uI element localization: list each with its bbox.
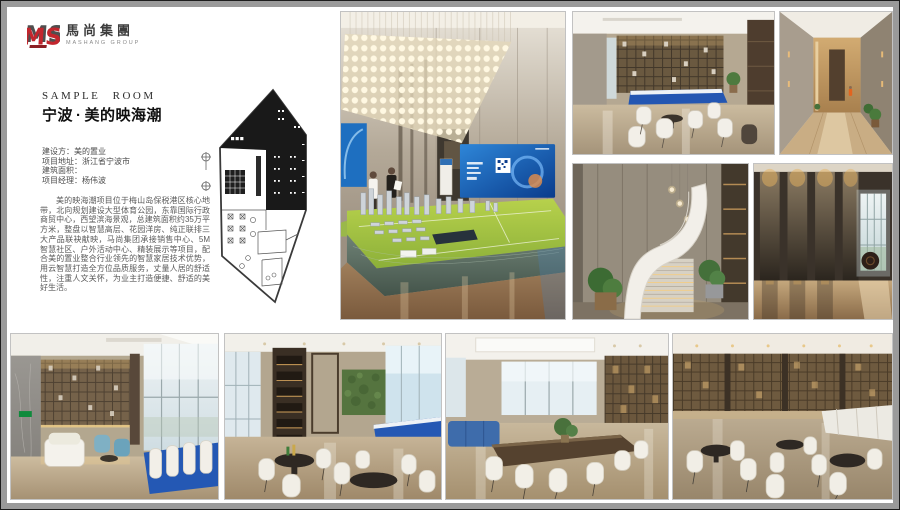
dining-illustration bbox=[673, 334, 892, 499]
section-eyebrow: SAMPLE ROOM bbox=[42, 90, 156, 102]
brand-name-en: MASHANG GROUP bbox=[66, 40, 140, 46]
detail-value: 美的置业 bbox=[74, 147, 106, 156]
photo-meeting-table bbox=[445, 333, 669, 500]
ms-monogram-icon: MS MS bbox=[27, 16, 60, 56]
meeting-illustration bbox=[446, 334, 668, 499]
staircase-illustration bbox=[573, 164, 748, 319]
photo-hallway-columns bbox=[753, 163, 893, 320]
lounge2-illustration bbox=[11, 334, 218, 499]
brand-text: 馬尚集團 MASHANG GROUP bbox=[66, 23, 140, 46]
floor-plan-drawing bbox=[198, 82, 328, 312]
photo-dining-shelf bbox=[672, 333, 893, 500]
photo-lounge-windows bbox=[10, 333, 219, 500]
plan-marker-icon bbox=[201, 152, 211, 191]
photo-restaurant bbox=[224, 333, 442, 500]
detail-label: 项目经理： bbox=[42, 176, 82, 185]
slide-canvas: MS MS 馬尚集團 MASHANG GROUP SAMPLE ROOM 宁波·… bbox=[0, 0, 900, 510]
detail-row: 项目地址：浙江省宁波市 bbox=[42, 157, 130, 167]
lobby-illustration bbox=[341, 12, 565, 319]
detail-row: 建设方：美的置业 bbox=[42, 147, 130, 157]
detail-value: 浙江省宁波市 bbox=[82, 157, 130, 166]
detail-value: 杨伟波 bbox=[82, 176, 106, 185]
photo-corridor bbox=[779, 11, 893, 155]
led-screen bbox=[460, 144, 555, 198]
detail-label: 建设方： bbox=[42, 147, 74, 156]
detail-row: 项目经理：杨伟波 bbox=[42, 176, 130, 186]
detail-label: 建筑面积： bbox=[42, 166, 82, 175]
floor-plan bbox=[198, 82, 328, 312]
title-project: 美的映海潮 bbox=[85, 107, 163, 124]
brand-name-cn: 馬尚集團 bbox=[66, 23, 140, 38]
restaurant-illustration bbox=[225, 334, 441, 499]
title-city: 宁波 bbox=[42, 107, 73, 124]
photo-lounge-bookshelf bbox=[572, 11, 775, 155]
detail-label: 项目地址： bbox=[42, 157, 82, 166]
lounge-illustration bbox=[573, 12, 774, 154]
project-description: 美的映海潮项目位于梅山岛保税港区核心地带，北向规划建设大型体育公园，东靠国际行政… bbox=[40, 196, 210, 293]
photo-staircase bbox=[572, 163, 749, 320]
page-title: 宁波·美的映海潮 bbox=[42, 104, 162, 125]
hallway-illustration bbox=[754, 164, 892, 319]
title-separator: · bbox=[76, 107, 82, 124]
project-details: 建设方：美的置业 项目地址：浙江省宁波市 建筑面积： 项目经理：杨伟波 bbox=[42, 147, 130, 185]
corridor-illustration bbox=[780, 12, 892, 154]
detail-row: 建筑面积： bbox=[42, 166, 130, 176]
photo-lobby-model bbox=[340, 11, 566, 320]
